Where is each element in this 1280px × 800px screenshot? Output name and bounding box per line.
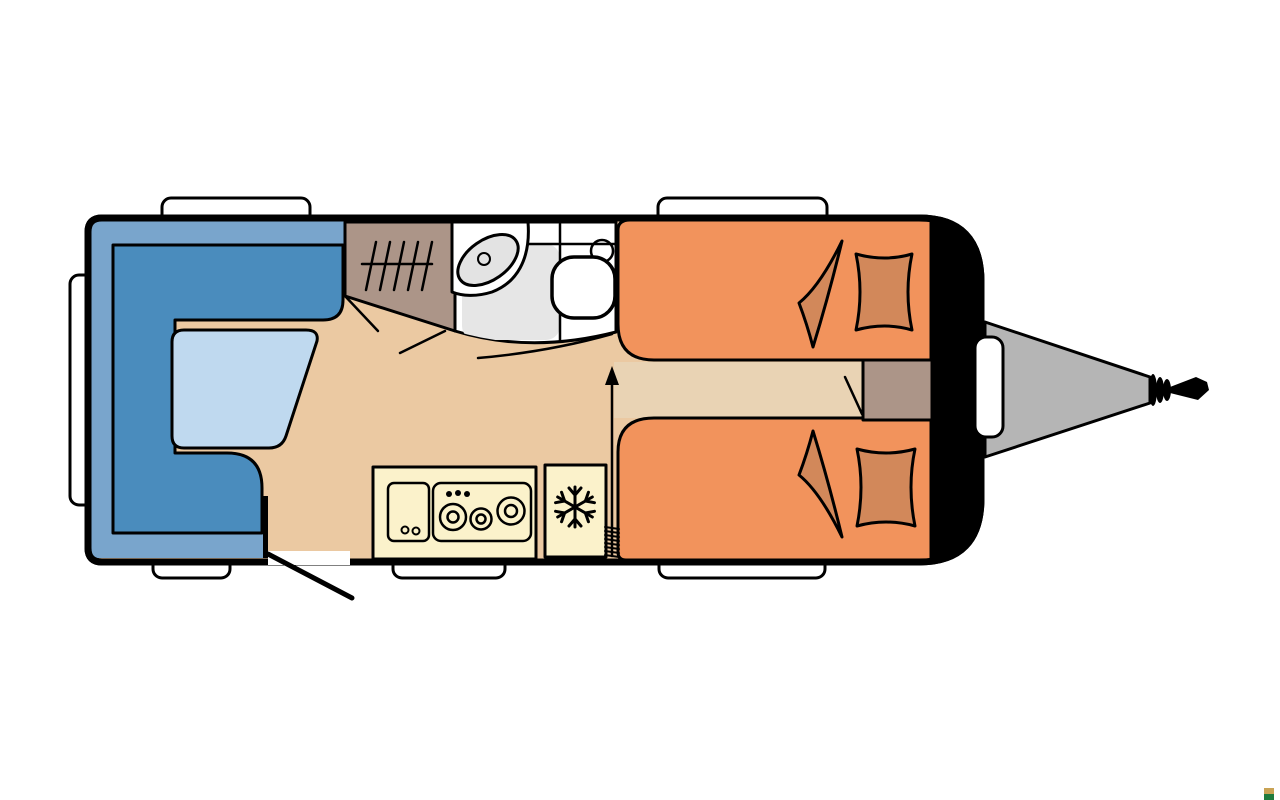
bed-walkway bbox=[614, 362, 866, 418]
watermark-bottom-half bbox=[1264, 794, 1274, 800]
caravan-floorplan bbox=[0, 0, 1280, 800]
drawbar-triangle bbox=[985, 322, 1150, 457]
pillow-top bbox=[856, 254, 912, 330]
bedside-cabinet bbox=[863, 360, 932, 420]
hob-knob-dot bbox=[455, 490, 461, 496]
floorplan-canvas bbox=[0, 0, 1280, 800]
hitch-coupling-handle bbox=[1170, 377, 1209, 400]
kitchen bbox=[373, 465, 606, 559]
dinette-end-partition bbox=[263, 496, 268, 558]
pillow-bottom bbox=[857, 449, 915, 526]
hob-knob-dot bbox=[446, 491, 452, 497]
window-front-wall bbox=[975, 337, 1003, 437]
toilet bbox=[552, 257, 615, 318]
hitch-bellows-rib bbox=[1163, 379, 1171, 401]
hob-knob-dot bbox=[464, 491, 470, 497]
hitch-bellows-rib bbox=[1149, 374, 1157, 406]
hitch-bellows-rib bbox=[1156, 377, 1164, 403]
drawbar-hitch bbox=[985, 322, 1209, 457]
watermark-top-half bbox=[1264, 788, 1274, 794]
